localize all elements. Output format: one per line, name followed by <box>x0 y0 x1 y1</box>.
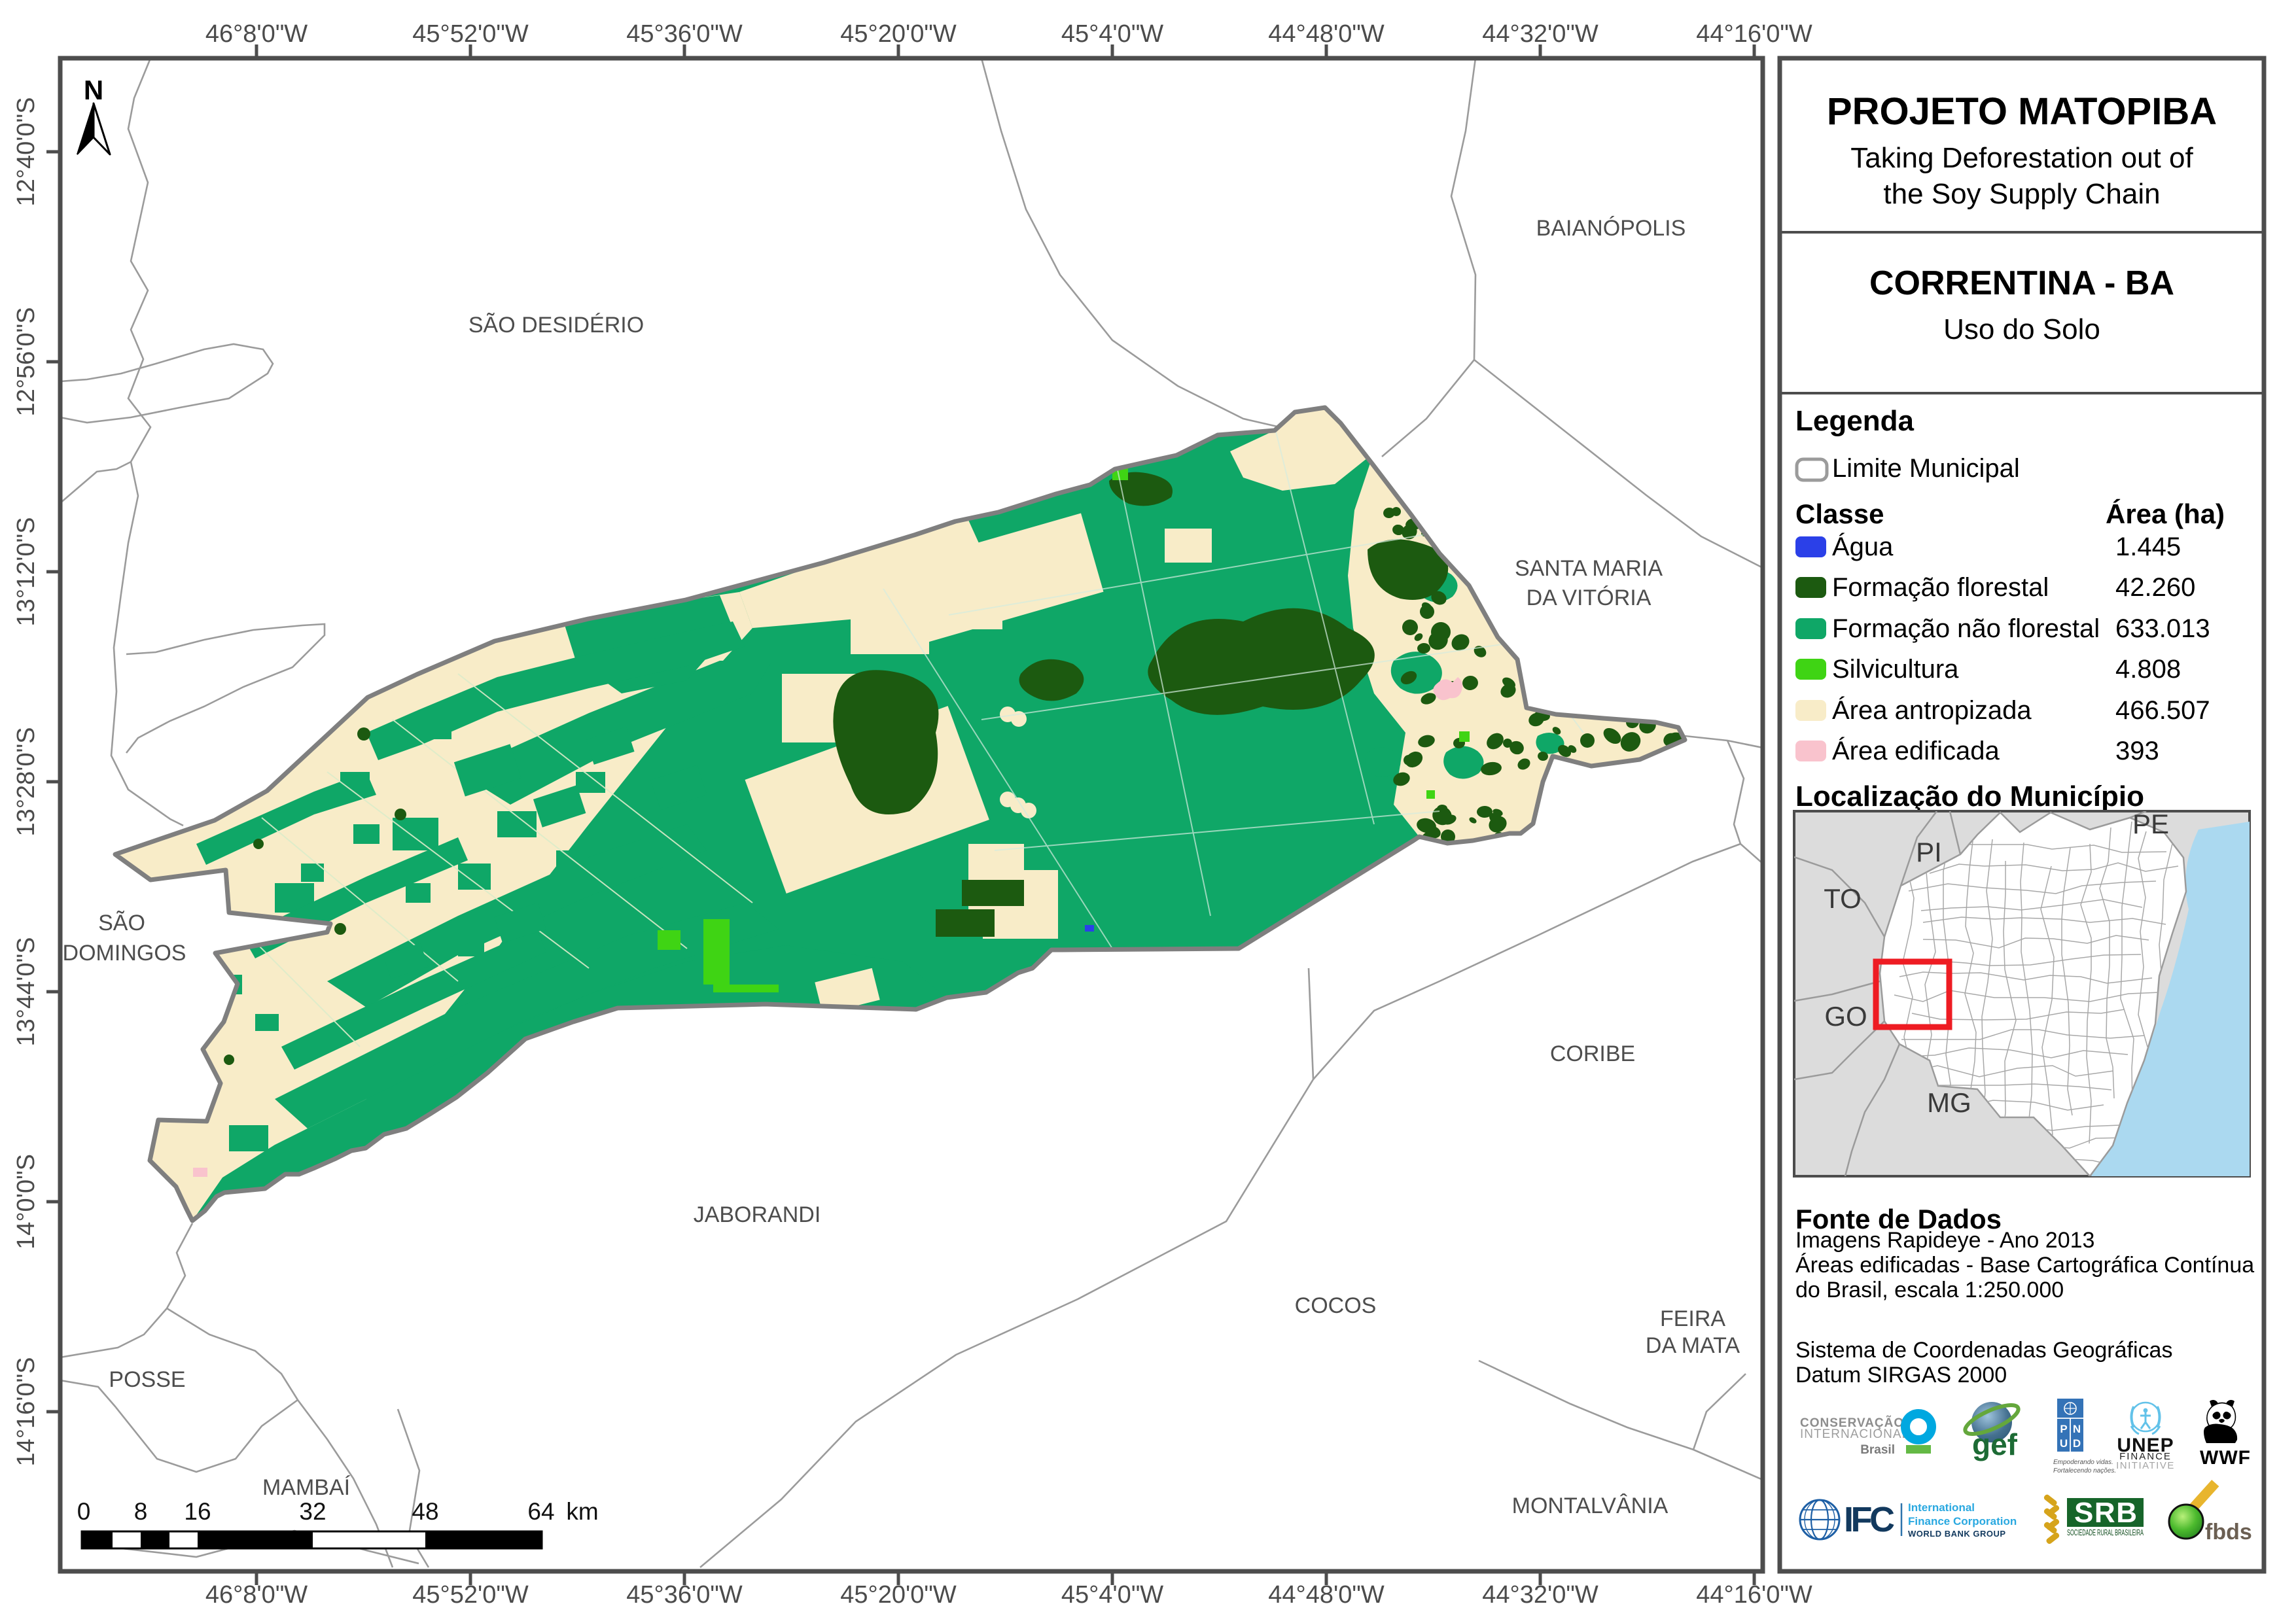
svg-text:45°20'0"W: 45°20'0"W <box>840 1581 957 1609</box>
svg-text:0: 0 <box>77 1498 91 1525</box>
svg-text:D: D <box>2073 1437 2081 1450</box>
svg-text:393: 393 <box>2115 737 2159 765</box>
svg-text:45°52'0"W: 45°52'0"W <box>412 20 529 48</box>
svg-text:Legenda: Legenda <box>1795 405 1914 437</box>
svg-text:44°48'0"W: 44°48'0"W <box>1268 1581 1385 1609</box>
svg-text:48: 48 <box>412 1498 438 1525</box>
svg-text:Sistema de Coordenadas Geográf: Sistema de Coordenadas Geográficas <box>1795 1338 2172 1363</box>
svg-text:14°0'0"S: 14°0'0"S <box>12 1154 40 1249</box>
svg-text:Área antropizada: Área antropizada <box>1832 695 2032 725</box>
svg-text:633.013: 633.013 <box>2115 614 2210 643</box>
svg-text:IFC: IFC <box>1844 1500 1895 1539</box>
svg-text:13°28'0"S: 13°28'0"S <box>12 727 40 837</box>
svg-text:14°16'0"S: 14°16'0"S <box>12 1357 40 1467</box>
svg-text:Limite Municipal: Limite Municipal <box>1832 454 2020 483</box>
svg-text:44°32'0"W: 44°32'0"W <box>1482 1581 1598 1609</box>
svg-text:466.507: 466.507 <box>2115 696 2210 725</box>
svg-text:1.445: 1.445 <box>2115 532 2181 561</box>
svg-text:SANTA MARIA: SANTA MARIA <box>1515 556 1663 581</box>
svg-text:46°8'0"W: 46°8'0"W <box>205 1581 308 1609</box>
svg-text:CORRENTINA - BA: CORRENTINA - BA <box>1869 264 2174 302</box>
svg-text:U: U <box>2060 1437 2068 1450</box>
svg-text:International: International <box>1908 1501 1975 1514</box>
svg-text:km: km <box>566 1498 598 1525</box>
svg-text:Classe: Classe <box>1795 498 1884 529</box>
svg-text:INTERNACIONAL: INTERNACIONAL <box>1800 1427 1909 1441</box>
svg-text:4.808: 4.808 <box>2115 655 2181 684</box>
svg-text:44°16'0"W: 44°16'0"W <box>1696 1581 1812 1609</box>
svg-text:fbds: fbds <box>2205 1520 2252 1544</box>
svg-text:42.260: 42.260 <box>2115 573 2195 602</box>
svg-text:44°16'0"W: 44°16'0"W <box>1696 20 1812 48</box>
svg-text:45°4'0"W: 45°4'0"W <box>1061 1581 1163 1609</box>
svg-text:Localização do Município: Localização do Município <box>1795 780 2144 812</box>
svg-text:MONTALVÂNIA: MONTALVÂNIA <box>1512 1493 1669 1518</box>
svg-text:Empoderando vidas.: Empoderando vidas. <box>2053 1459 2113 1466</box>
svg-text:WWF: WWF <box>2200 1447 2251 1469</box>
svg-text:Formação florestal: Formação florestal <box>1832 573 2049 602</box>
svg-text:44°48'0"W: 44°48'0"W <box>1268 20 1385 48</box>
svg-text:Taking Deforestation out of: Taking Deforestation out of <box>1850 142 2193 174</box>
svg-text:45°20'0"W: 45°20'0"W <box>840 20 957 48</box>
svg-text:COCOS: COCOS <box>1295 1293 1377 1318</box>
svg-text:INITIATIVE: INITIATIVE <box>2116 1460 2175 1471</box>
svg-text:Áreas edificadas - Base Cartog: Áreas edificadas - Base Cartográfica Con… <box>1795 1253 2254 1278</box>
svg-text:gef: gef <box>1972 1427 2018 1461</box>
svg-text:SÃO: SÃO <box>98 911 145 935</box>
svg-text:13°12'0"S: 13°12'0"S <box>12 517 40 627</box>
svg-text:SOCIEDADE RURAL BRASILEIRA: SOCIEDADE RURAL BRASILEIRA <box>2067 1527 2144 1537</box>
svg-text:45°36'0"W: 45°36'0"W <box>626 1581 743 1609</box>
svg-text:8: 8 <box>134 1498 148 1525</box>
svg-text:Imagens Rapideye - Ano 2013: Imagens Rapideye - Ano 2013 <box>1795 1228 2094 1253</box>
svg-text:SÃO DESIDÉRIO: SÃO DESIDÉRIO <box>468 313 644 338</box>
svg-text:DOMINGOS: DOMINGOS <box>63 941 186 966</box>
svg-text:BAIANÓPOLIS: BAIANÓPOLIS <box>1536 216 1686 241</box>
svg-text:DA MATA: DA MATA <box>1646 1333 1740 1358</box>
svg-text:Finance Corporation: Finance Corporation <box>1908 1515 2017 1527</box>
svg-text:Formação não florestal: Formação não florestal <box>1832 614 2100 643</box>
svg-text:Datum SIRGAS 2000: Datum SIRGAS 2000 <box>1795 1363 2007 1387</box>
svg-text:13°44'0"S: 13°44'0"S <box>12 937 40 1047</box>
svg-text:Área edificada: Área edificada <box>1832 736 2000 765</box>
svg-text:64: 64 <box>527 1498 554 1525</box>
svg-text:N: N <box>84 75 103 105</box>
svg-text:POSSE: POSSE <box>109 1367 185 1392</box>
svg-text:MG: MG <box>1927 1087 1971 1118</box>
svg-text:12°56'0"S: 12°56'0"S <box>12 307 40 417</box>
svg-text:45°36'0"W: 45°36'0"W <box>626 20 743 48</box>
svg-text:SRB: SRB <box>2074 1497 2137 1529</box>
svg-text:32: 32 <box>299 1498 326 1525</box>
svg-text:Uso do Solo: Uso do Solo <box>1943 313 2100 345</box>
svg-text:do Brasil, escala 1:250.000: do Brasil, escala 1:250.000 <box>1795 1278 2064 1302</box>
svg-text:WORLD BANK GROUP: WORLD BANK GROUP <box>1908 1529 2006 1539</box>
svg-text:MAMBAÍ: MAMBAÍ <box>262 1475 351 1500</box>
svg-text:CORIBE: CORIBE <box>1550 1041 1635 1066</box>
svg-text:44°32'0"W: 44°32'0"W <box>1482 20 1598 48</box>
svg-text:Água: Água <box>1832 532 1894 561</box>
svg-text:P: P <box>2060 1423 2067 1435</box>
svg-text:DA VITÓRIA: DA VITÓRIA <box>1527 585 1651 610</box>
svg-text:16: 16 <box>184 1498 211 1525</box>
svg-text:12°40'0"S: 12°40'0"S <box>12 97 40 207</box>
svg-text:TO: TO <box>1824 883 1862 914</box>
svg-text:FEIRA: FEIRA <box>1660 1306 1725 1331</box>
svg-text:Brasil: Brasil <box>1860 1443 1895 1457</box>
svg-text:PE: PE <box>2132 809 2169 839</box>
svg-text:Silvicultura: Silvicultura <box>1832 655 1959 684</box>
svg-text:45°4'0"W: 45°4'0"W <box>1061 20 1163 48</box>
svg-text:Área (ha): Área (ha) <box>2106 498 2225 529</box>
svg-text:45°52'0"W: 45°52'0"W <box>412 1581 529 1609</box>
svg-text:PI: PI <box>1916 837 1942 867</box>
svg-text:PROJETO MATOPIBA: PROJETO MATOPIBA <box>1827 90 2217 133</box>
svg-text:46°8'0"W: 46°8'0"W <box>205 20 308 48</box>
svg-text:N: N <box>2073 1423 2081 1435</box>
svg-text:GO: GO <box>1824 1001 1867 1032</box>
svg-text:Fortalecendo nações.: Fortalecendo nações. <box>2053 1467 2116 1475</box>
svg-text:JABORANDI: JABORANDI <box>694 1202 821 1227</box>
svg-text:the Soy Supply Chain: the Soy Supply Chain <box>1883 178 2160 210</box>
